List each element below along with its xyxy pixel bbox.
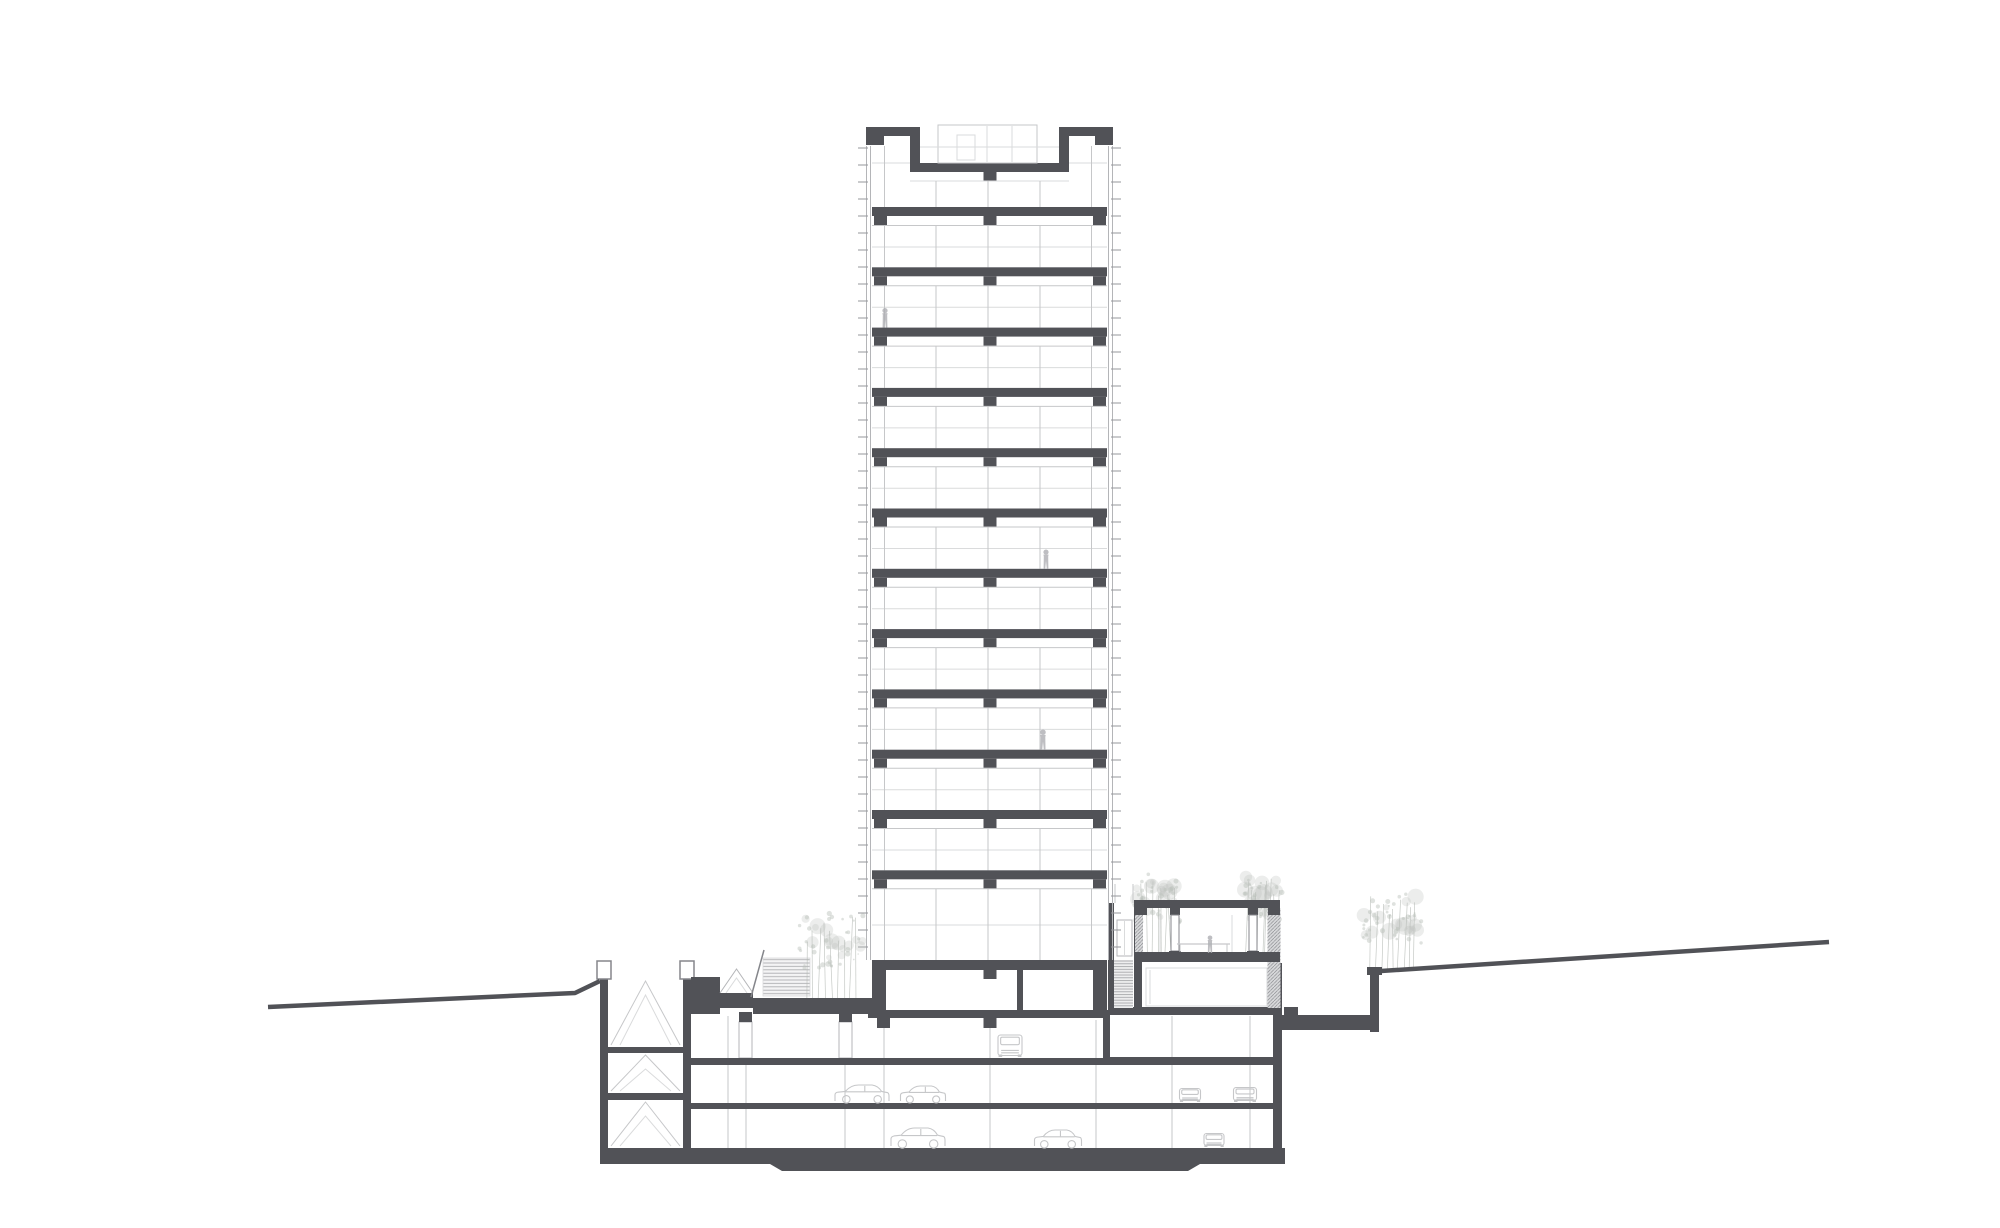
car-front	[1180, 1089, 1201, 1103]
bamboo-tree	[1357, 889, 1424, 969]
car-side	[901, 1086, 946, 1103]
person-silhouette	[1040, 730, 1045, 751]
person-silhouette	[1043, 550, 1048, 570]
tower	[858, 125, 1121, 1012]
podium-basement	[597, 908, 1382, 1171]
car-van	[998, 1035, 1022, 1057]
person-silhouette	[1208, 936, 1213, 954]
car-front	[1204, 1134, 1224, 1148]
car-side	[835, 1085, 889, 1103]
parked-cars	[835, 1035, 1257, 1148]
section-drawing-svg	[0, 0, 2000, 1228]
car-front	[1234, 1088, 1257, 1102]
car-side	[1035, 1130, 1082, 1148]
ground-lines	[268, 942, 1829, 1007]
car-side	[891, 1128, 945, 1148]
architectural-section-canvas	[0, 0, 2000, 1228]
